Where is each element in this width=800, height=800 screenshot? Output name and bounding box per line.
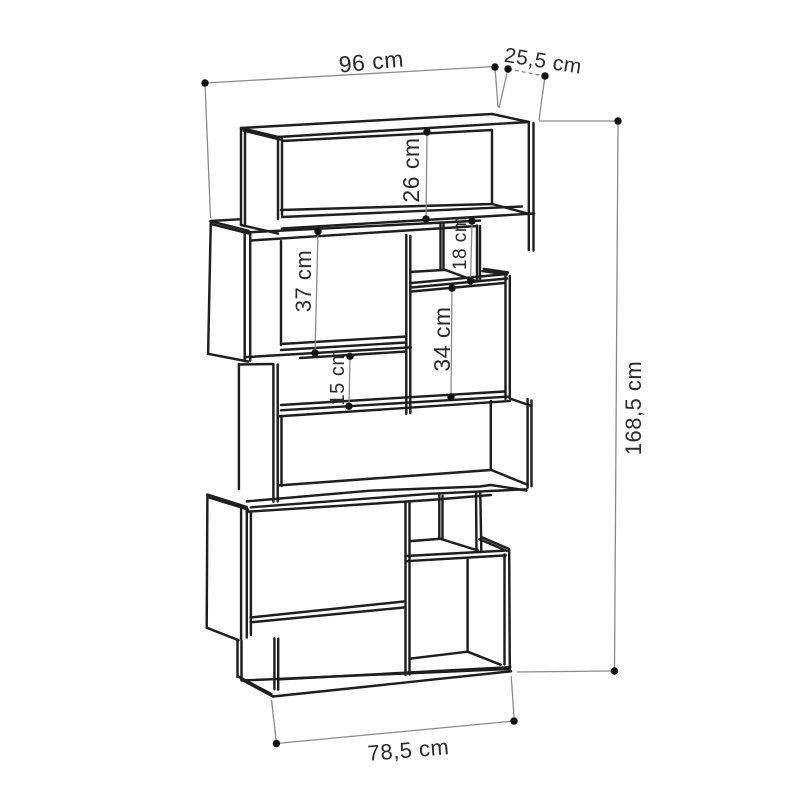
svg-text:15 cm: 15 cm — [327, 349, 349, 406]
svg-text:18 cm: 18 cm — [450, 216, 471, 270]
svg-text:34 cm: 34 cm — [429, 306, 455, 371]
svg-text:37 cm: 37 cm — [291, 250, 316, 312]
svg-text:78,5 cm: 78,5 cm — [367, 734, 451, 766]
svg-text:26 cm: 26 cm — [398, 137, 424, 202]
svg-text:168,5 cm: 168,5 cm — [621, 361, 646, 456]
